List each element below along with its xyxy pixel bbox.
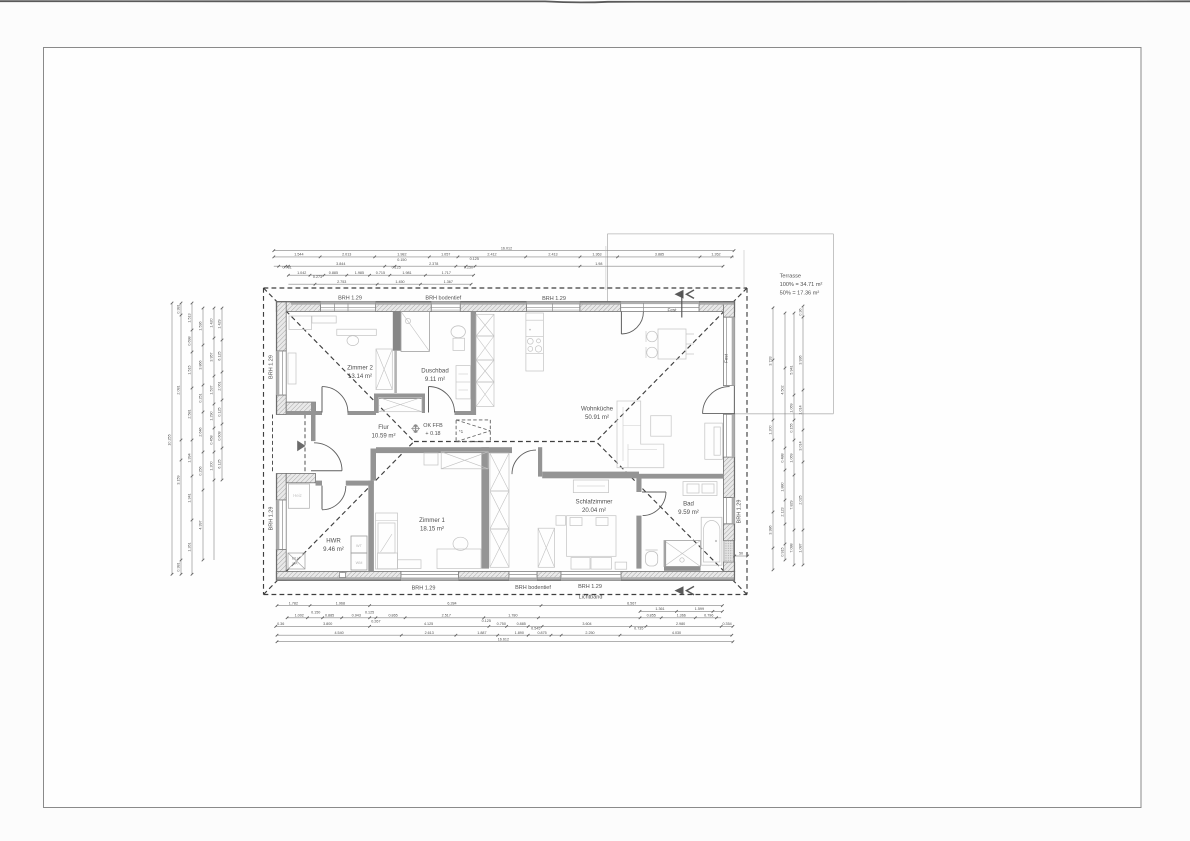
svg-text:2.013: 2.013 bbox=[342, 253, 351, 257]
svg-text:0.458: 0.458 bbox=[210, 435, 214, 444]
svg-text:Fest: Fest bbox=[724, 353, 729, 363]
svg-text:0.273: 0.273 bbox=[313, 275, 322, 279]
svg-text:HWR: HWR bbox=[326, 538, 341, 545]
svg-text:4.125: 4.125 bbox=[424, 622, 433, 626]
svg-text:1.599: 1.599 bbox=[695, 607, 704, 611]
svg-text:OK FFB: OK FFB bbox=[423, 423, 443, 429]
svg-text:0.125: 0.125 bbox=[470, 257, 479, 261]
svg-text:0.125: 0.125 bbox=[392, 266, 401, 270]
svg-text:Lichtband: Lichtband bbox=[579, 595, 603, 601]
svg-text:1.968: 1.968 bbox=[336, 601, 345, 605]
svg-text:16.612: 16.612 bbox=[498, 637, 509, 641]
svg-text:Duschbad: Duschbad bbox=[421, 368, 448, 375]
svg-text:1.450: 1.450 bbox=[395, 280, 404, 284]
svg-text:Zimmer 2: Zimmer 2 bbox=[347, 365, 373, 372]
svg-text:BRH 1.29: BRH 1.29 bbox=[737, 500, 743, 524]
svg-text:1.069: 1.069 bbox=[790, 403, 794, 412]
svg-text:WT: WT bbox=[356, 544, 363, 548]
svg-text:1.057: 1.057 bbox=[441, 253, 450, 257]
svg-text:0.155: 0.155 bbox=[790, 423, 794, 432]
svg-text:Bad: Bad bbox=[683, 501, 694, 508]
svg-text:16.012: 16.012 bbox=[501, 246, 512, 250]
svg-text:6.567: 6.567 bbox=[627, 601, 636, 605]
svg-text:Terrasse: Terrasse bbox=[780, 274, 801, 280]
svg-text:3.936: 3.936 bbox=[799, 355, 803, 364]
svg-text:1.98: 1.98 bbox=[595, 262, 602, 266]
svg-text:0.735: 0.735 bbox=[634, 627, 643, 631]
svg-text:Zimmer 1: Zimmer 1 bbox=[419, 517, 445, 524]
svg-text:2.517: 2.517 bbox=[442, 614, 451, 618]
svg-text:4.540: 4.540 bbox=[334, 631, 343, 635]
svg-text:1.002: 1.002 bbox=[295, 614, 304, 618]
svg-text:20.04 m²: 20.04 m² bbox=[582, 507, 606, 514]
svg-text:4.502: 4.502 bbox=[781, 385, 785, 394]
svg-text:1.394: 1.394 bbox=[188, 453, 192, 462]
svg-text:100% = 34.71 m²: 100% = 34.71 m² bbox=[780, 282, 823, 288]
svg-text:3.014: 3.014 bbox=[799, 441, 803, 450]
svg-text:Flur: Flur bbox=[378, 424, 389, 431]
svg-text:0.150: 0.150 bbox=[397, 258, 406, 262]
svg-text:2.081: 2.081 bbox=[177, 385, 181, 394]
svg-text:0.943: 0.943 bbox=[352, 614, 361, 618]
svg-text:2.646: 2.646 bbox=[199, 427, 203, 436]
svg-text:7.829: 7.829 bbox=[790, 500, 794, 509]
svg-text:0.381: 0.381 bbox=[177, 304, 181, 313]
svg-text:0.354: 0.354 bbox=[722, 622, 731, 626]
svg-text:1.513: 1.513 bbox=[188, 313, 192, 322]
svg-text:1.782: 1.782 bbox=[289, 601, 298, 605]
svg-text:9.46 m²: 9.46 m² bbox=[323, 546, 344, 553]
svg-text:2.378: 2.378 bbox=[429, 262, 438, 266]
svg-text:3.866: 3.866 bbox=[199, 360, 203, 369]
svg-text:4.397: 4.397 bbox=[199, 520, 203, 529]
svg-text:0.885: 0.885 bbox=[325, 614, 334, 618]
svg-text:0.251: 0.251 bbox=[199, 393, 203, 402]
svg-text:1.982: 1.982 bbox=[397, 253, 406, 257]
svg-text:0.608: 0.608 bbox=[218, 431, 222, 440]
svg-text:1.420: 1.420 bbox=[210, 318, 214, 327]
svg-text:1.200: 1.200 bbox=[769, 425, 773, 434]
svg-text:50.91 m²: 50.91 m² bbox=[585, 414, 609, 421]
svg-text:1.363: 1.363 bbox=[592, 253, 601, 257]
svg-text:1.544: 1.544 bbox=[294, 253, 303, 257]
svg-text:0.267: 0.267 bbox=[371, 620, 380, 624]
svg-text:2.980: 2.980 bbox=[676, 622, 685, 626]
svg-text:10.59 m²: 10.59 m² bbox=[371, 432, 395, 439]
svg-text:1.981: 1.981 bbox=[402, 271, 411, 275]
svg-text:BRH 1.29: BRH 1.29 bbox=[268, 507, 274, 531]
svg-text:0.36: 0.36 bbox=[799, 308, 803, 315]
svg-text:0.915: 0.915 bbox=[781, 547, 785, 556]
svg-text:+ 0.18: + 0.18 bbox=[425, 431, 440, 437]
svg-text:2.250: 2.250 bbox=[585, 631, 594, 635]
svg-text:3.885: 3.885 bbox=[655, 253, 664, 257]
svg-text:BRH bodentief: BRH bodentief bbox=[515, 585, 551, 591]
svg-text:1.200: 1.200 bbox=[210, 461, 214, 470]
svg-text:0.750: 0.750 bbox=[497, 622, 506, 626]
svg-text:0.488: 0.488 bbox=[781, 453, 785, 462]
svg-text:1.290: 1.290 bbox=[210, 411, 214, 420]
svg-text:BRH 1.29: BRH 1.29 bbox=[542, 296, 566, 302]
svg-text:1.880: 1.880 bbox=[781, 482, 785, 491]
svg-text:3.386: 3.386 bbox=[769, 525, 773, 534]
svg-text:1.537: 1.537 bbox=[210, 385, 214, 394]
svg-text:0.781: 0.781 bbox=[282, 266, 291, 270]
svg-text:1.341: 1.341 bbox=[188, 493, 192, 502]
svg-text:0.875: 0.875 bbox=[537, 631, 546, 635]
svg-text:3.800: 3.800 bbox=[323, 622, 332, 626]
svg-text:0.698: 0.698 bbox=[188, 336, 192, 345]
svg-text:1.780: 1.780 bbox=[508, 614, 517, 618]
svg-text:0.125: 0.125 bbox=[218, 407, 222, 416]
svg-text:BRH bodentief: BRH bodentief bbox=[425, 296, 461, 302]
svg-text:18.15 m²: 18.15 m² bbox=[420, 525, 444, 532]
svg-text:Elt./: Elt./ bbox=[292, 557, 298, 561]
svg-text:1.366: 1.366 bbox=[677, 614, 686, 618]
svg-text:0.125: 0.125 bbox=[482, 619, 491, 623]
svg-text:1.014: 1.014 bbox=[799, 405, 803, 414]
svg-text:1.985: 1.985 bbox=[355, 271, 364, 275]
svg-text:1.515: 1.515 bbox=[188, 365, 192, 374]
svg-text:1.890: 1.890 bbox=[515, 631, 524, 635]
svg-text:Fest: Fest bbox=[668, 308, 678, 313]
svg-text:0.250: 0.250 bbox=[464, 266, 473, 270]
svg-text:6.125: 6.125 bbox=[218, 351, 222, 360]
svg-text:6.284: 6.284 bbox=[447, 601, 456, 605]
svg-text:0.796: 0.796 bbox=[704, 614, 713, 618]
svg-text:BRH 1.29: BRH 1.29 bbox=[578, 584, 602, 590]
svg-text:13.14 m²: 13.14 m² bbox=[348, 373, 372, 380]
svg-text:BRH 1.29: BRH 1.29 bbox=[338, 296, 362, 302]
svg-text:0.885: 0.885 bbox=[329, 271, 338, 275]
svg-text:2.613: 2.613 bbox=[425, 631, 434, 635]
svg-text:5.941: 5.941 bbox=[790, 365, 794, 374]
svg-text:2.412: 2.412 bbox=[487, 253, 496, 257]
svg-text:9.11 m²: 9.11 m² bbox=[425, 376, 445, 383]
svg-text:WM: WM bbox=[356, 561, 363, 565]
svg-text:0.150: 0.150 bbox=[311, 611, 320, 615]
svg-text:1.536: 1.536 bbox=[199, 321, 203, 330]
svg-text:2.753: 2.753 bbox=[337, 280, 346, 284]
svg-text:0.36: 0.36 bbox=[277, 622, 284, 626]
svg-text:0.125: 0.125 bbox=[365, 611, 374, 615]
svg-text:3.159: 3.159 bbox=[177, 475, 181, 484]
svg-text:Wohnküche: Wohnküche bbox=[581, 406, 614, 413]
svg-text:BRH 1.29: BRH 1.29 bbox=[412, 586, 436, 592]
svg-text:4.030: 4.030 bbox=[672, 631, 681, 635]
svg-text:1.069: 1.069 bbox=[790, 453, 794, 462]
svg-text:2.061: 2.061 bbox=[218, 381, 222, 390]
svg-text:3.844: 3.844 bbox=[336, 262, 345, 266]
svg-text:1.361: 1.361 bbox=[655, 607, 664, 611]
svg-text:1.262: 1.262 bbox=[711, 253, 720, 257]
svg-text:0.865: 0.865 bbox=[388, 614, 397, 618]
svg-text:1.717: 1.717 bbox=[442, 271, 451, 275]
svg-text:9.59 m²: 9.59 m² bbox=[678, 509, 699, 516]
svg-text:2.413: 2.413 bbox=[548, 253, 557, 257]
svg-text:3.604: 3.604 bbox=[582, 622, 591, 626]
svg-text:1.042: 1.042 bbox=[297, 271, 306, 275]
svg-text:3.957: 3.957 bbox=[210, 352, 214, 361]
svg-text:6.125: 6.125 bbox=[218, 459, 222, 468]
svg-text:0.885: 0.885 bbox=[517, 622, 526, 626]
svg-text:2.123: 2.123 bbox=[781, 507, 785, 516]
svg-text:0.381: 0.381 bbox=[177, 562, 181, 571]
svg-text:3.733: 3.733 bbox=[769, 356, 773, 365]
svg-text:BRH 1.29: BRH 1.29 bbox=[268, 355, 274, 379]
svg-text:Schlafzimmer: Schlafzimmer bbox=[576, 499, 613, 506]
svg-text:50: 50 bbox=[739, 552, 743, 556]
svg-text:1.429: 1.429 bbox=[218, 319, 222, 328]
svg-text:10.255: 10.255 bbox=[168, 434, 172, 445]
svg-text:*1: *1 bbox=[459, 429, 464, 434]
svg-text:7.088: 7.088 bbox=[790, 543, 794, 552]
svg-text:2.581: 2.581 bbox=[188, 409, 192, 418]
svg-text:1.261: 1.261 bbox=[188, 542, 192, 551]
svg-text:Heiz: Heiz bbox=[293, 493, 302, 498]
svg-text:50% = 17.36 m²: 50% = 17.36 m² bbox=[780, 291, 820, 297]
svg-text:HA: HA bbox=[293, 562, 299, 566]
svg-text:0.715: 0.715 bbox=[376, 271, 385, 275]
svg-text:2.025: 2.025 bbox=[799, 495, 803, 504]
svg-text:1.367: 1.367 bbox=[444, 280, 453, 284]
svg-text:1.887: 1.887 bbox=[477, 631, 486, 635]
svg-text:0.256: 0.256 bbox=[199, 466, 203, 475]
svg-text:1.087: 1.087 bbox=[799, 543, 803, 552]
svg-text:0.855: 0.855 bbox=[647, 614, 656, 618]
